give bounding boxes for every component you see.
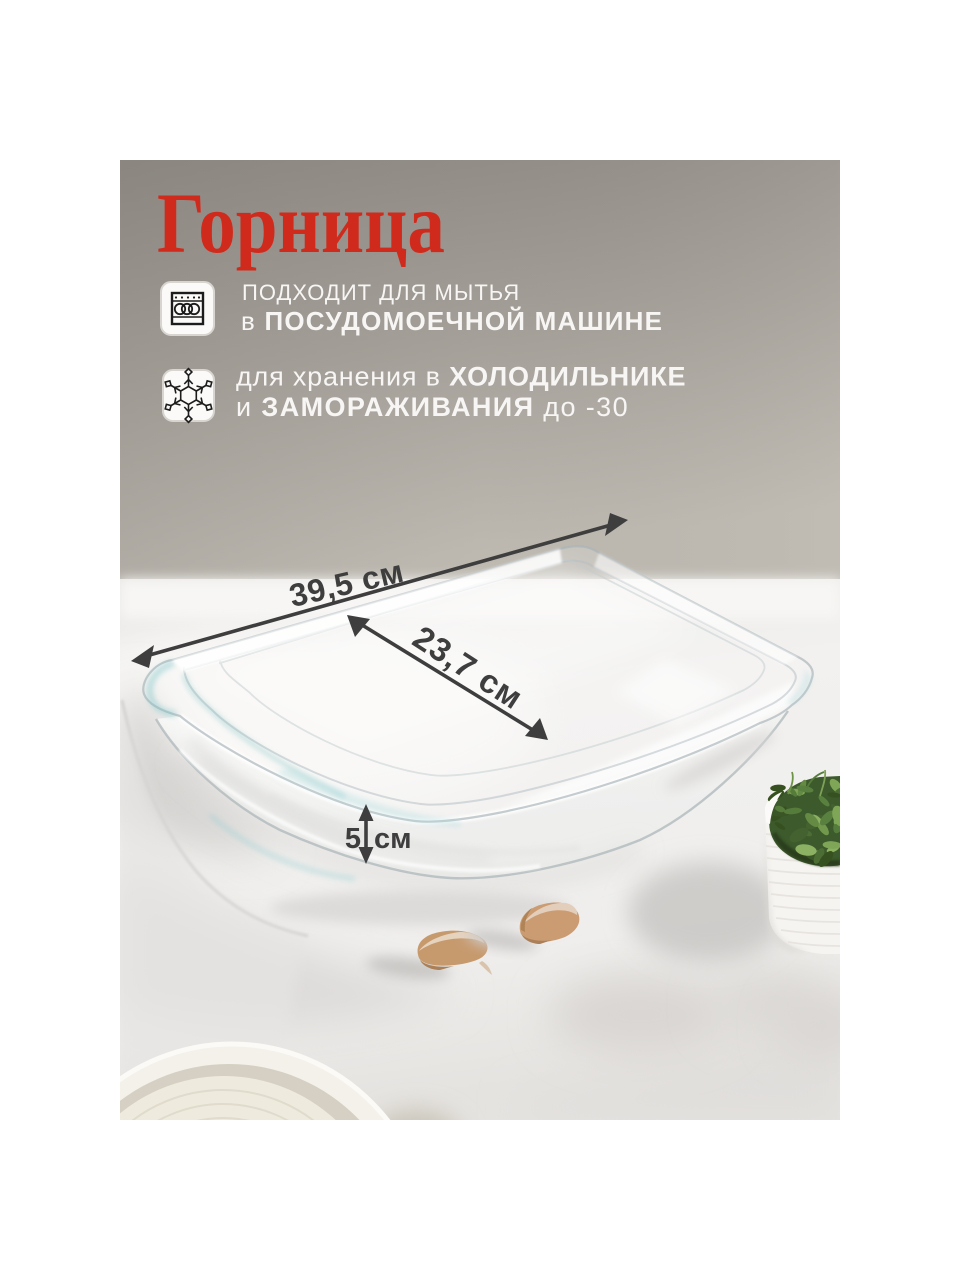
svg-text:ПОДХОДИТ ДЛЯ МЫТЬЯ: ПОДХОДИТ ДЛЯ МЫТЬЯ xyxy=(242,280,520,305)
svg-text:см: см xyxy=(374,823,412,855)
svg-text:Горница: Горница xyxy=(157,175,445,271)
svg-text:и ЗАМОРАЖИВАНИЯ до -30: и ЗАМОРАЖИВАНИЯ до -30 xyxy=(236,392,629,422)
svg-text:для хранения в ХОЛОДИЛЬНИКЕ: для хранения в ХОЛОДИЛЬНИКЕ xyxy=(236,362,686,392)
svg-text:5: 5 xyxy=(345,823,361,855)
svg-text:в ПОСУДОМОЕЧНОЙ МАШИНЕ: в ПОСУДОМОЕЧНОЙ МАШИНЕ xyxy=(241,306,663,336)
